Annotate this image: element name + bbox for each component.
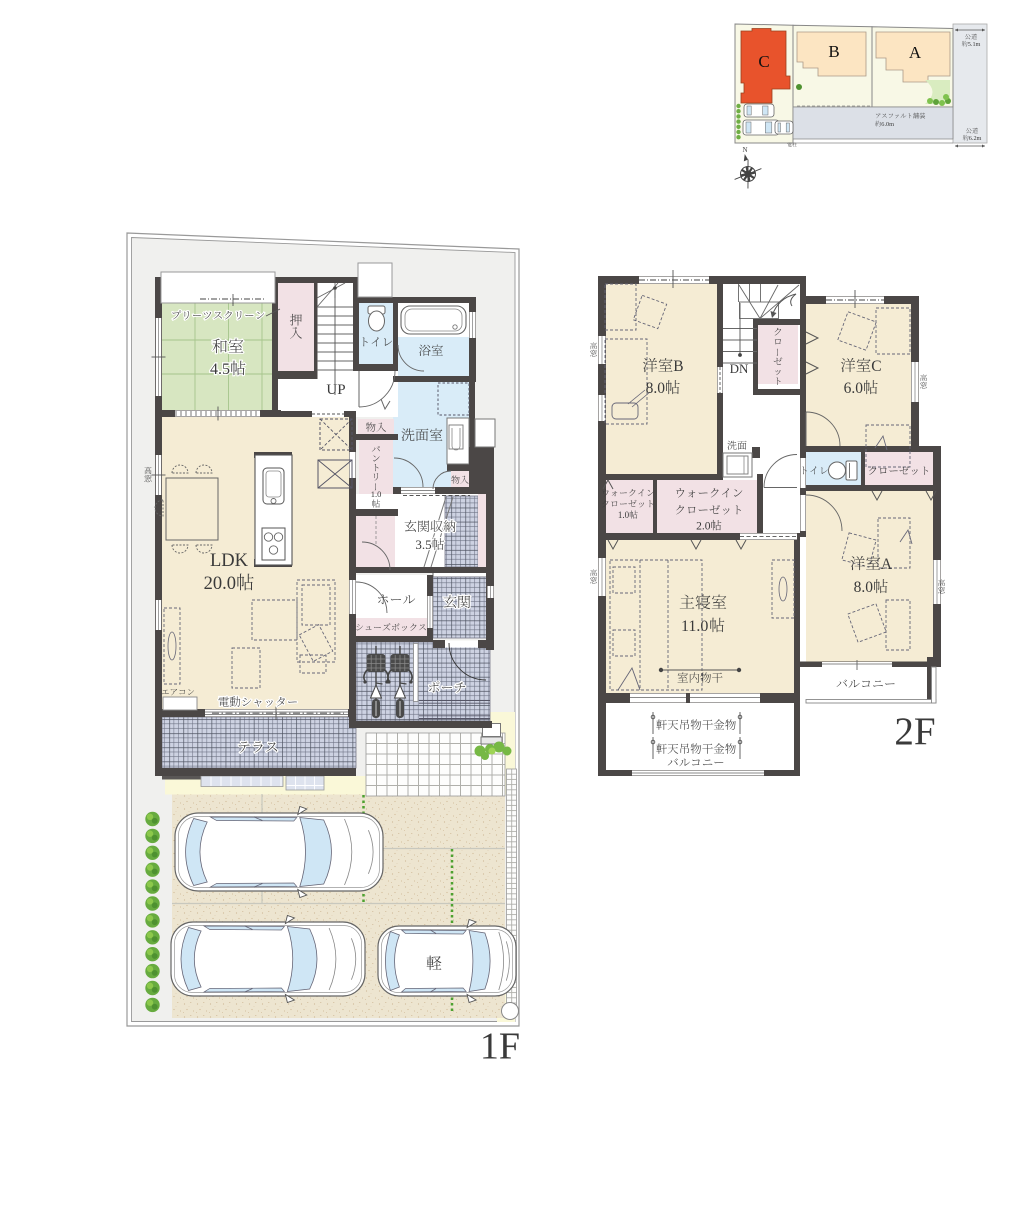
- svg-text:DN: DN: [730, 361, 749, 376]
- svg-text:UP: UP: [326, 382, 345, 398]
- svg-text:C: C: [758, 52, 769, 71]
- svg-text:A: A: [909, 43, 922, 62]
- svg-text:6.2m: 6.2m: [969, 135, 982, 142]
- svg-text:1.0: 1.0: [371, 489, 382, 499]
- svg-text:20.0: 20.0: [204, 574, 236, 594]
- svg-text:8.0: 8.0: [854, 579, 874, 596]
- svg-text:N: N: [742, 146, 747, 154]
- svg-text:B: B: [828, 42, 839, 61]
- svg-text:6.0m: 6.0m: [881, 121, 894, 128]
- svg-text:B: B: [673, 358, 683, 375]
- svg-text:2F: 2F: [894, 710, 935, 753]
- svg-text:1F: 1F: [480, 1026, 520, 1068]
- svg-text:5.1m: 5.1m: [968, 41, 981, 48]
- svg-text:LDK: LDK: [210, 551, 249, 571]
- svg-text:4.5: 4.5: [210, 361, 230, 378]
- svg-text:2.0: 2.0: [696, 521, 711, 533]
- svg-text:3.5: 3.5: [415, 537, 431, 552]
- svg-text:1.0: 1.0: [618, 510, 630, 520]
- svg-text:C: C: [871, 358, 881, 375]
- svg-text:A: A: [881, 556, 893, 573]
- svg-text:11.0: 11.0: [681, 618, 708, 635]
- svg-text:8.0: 8.0: [646, 380, 666, 397]
- svg-text:6.0: 6.0: [844, 380, 864, 397]
